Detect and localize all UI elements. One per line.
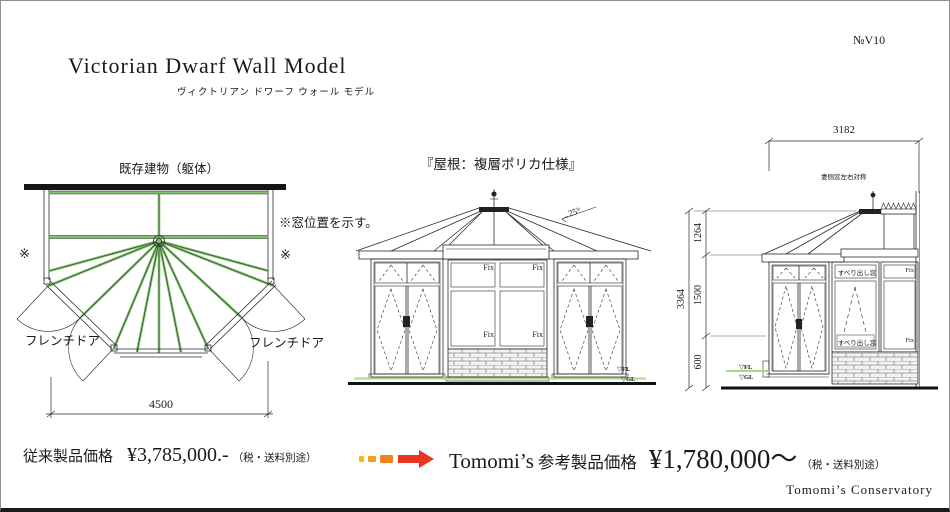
side-roof-rafters [764, 211, 916, 254]
old-price-tax-note: （税・送料別途） [233, 453, 317, 464]
side-note: 妻側窓左右対称 [821, 171, 867, 181]
side-dwarf-wall [832, 352, 918, 384]
front-finial [490, 189, 498, 208]
front-roof [356, 208, 651, 251]
side-roof-ridge [859, 191, 916, 214]
side-dim-total: 3364 [676, 269, 690, 329]
side-dim-wall: 600 [693, 332, 707, 392]
door-handle [403, 316, 410, 327]
old-price-row: 従来製品価格 ¥3,785,000.- （税・送料別途） [23, 444, 317, 467]
page-title: Victorian Dwarf Wall Model [68, 53, 346, 79]
page-subtitle: ヴィクトリアン ドワーフ ウォール モデル [141, 84, 411, 98]
side-fl-marker: ▽FL [739, 363, 752, 371]
door-handle [796, 319, 802, 329]
old-price-value: ¥3,785,000.- [127, 444, 229, 466]
side-elevation-drawing [666, 121, 946, 396]
existing-wall [24, 184, 286, 190]
front-right-doors [554, 259, 626, 377]
new-price-row: Tomomi’s 参考製品価格 ¥1,780,000〜 （税・送料別途） [449, 437, 885, 476]
front-roof-spec: 『屋根：複層ポリカ仕様』 [401, 153, 601, 173]
front-gl-marker: ▽GL [621, 375, 635, 383]
side-gl-marker: ▽GL [739, 373, 753, 381]
plan-asterisk-left: ※ [19, 246, 30, 262]
plan-width-dim: 4500 [131, 397, 191, 412]
side-width-dim: 3182 [814, 124, 874, 136]
side-awning-label-top: すべり出し窓 [835, 267, 879, 277]
roof-cresting [881, 203, 916, 209]
old-price-label: 従来製品価格 [23, 449, 113, 465]
doc-number: №V10 [853, 33, 885, 48]
plan-french-door-label-right: フレンチドア [249, 332, 324, 351]
plan-asterisk-right: ※ [280, 247, 291, 263]
front-fl-marker: ▽FL [617, 365, 630, 373]
front-left-doors [371, 259, 443, 377]
side-fix-top: Fix [886, 267, 914, 274]
new-price-tax-note: （税・送料別途） [801, 460, 885, 471]
brand-credit: Tomomi’s Conservatory [751, 482, 933, 498]
new-price-label: 参考製品価格 [538, 453, 637, 472]
new-price-brand: Tomomi’s [449, 449, 534, 473]
side-fix-bottom: Fix [886, 337, 914, 344]
price-arrow-icon [358, 449, 448, 469]
front-fix-bottom-left: Fix [456, 330, 494, 339]
plan-existing-building-label: 既存建物（躯体） [119, 158, 219, 177]
side-dim-window: 1500 [693, 265, 707, 325]
side-height-dimensions [685, 208, 856, 391]
side-awning-label-bottom: すべり出し窓 [837, 337, 877, 347]
new-price-value: ¥1,780,000〜 [649, 444, 798, 474]
front-fix-top-right: Fix [505, 263, 543, 272]
front-fix-top-left: Fix [456, 263, 494, 272]
drawing-sheet: №V10 Victorian Dwarf Wall Model ヴィクトリアン … [0, 0, 950, 512]
side-dim-roof: 1264 [693, 203, 707, 263]
front-dwarf-wall [448, 349, 547, 377]
front-fix-bottom-right: Fix [505, 330, 543, 339]
front-center-cornice [443, 245, 549, 259]
plan-french-door-label-left: フレンチドア [25, 330, 100, 349]
door-handle [586, 316, 593, 327]
front-elevation-drawing [346, 181, 661, 396]
side-top-dimension [765, 138, 923, 193]
side-doors [763, 262, 829, 377]
plan-view-drawing [16, 149, 356, 429]
